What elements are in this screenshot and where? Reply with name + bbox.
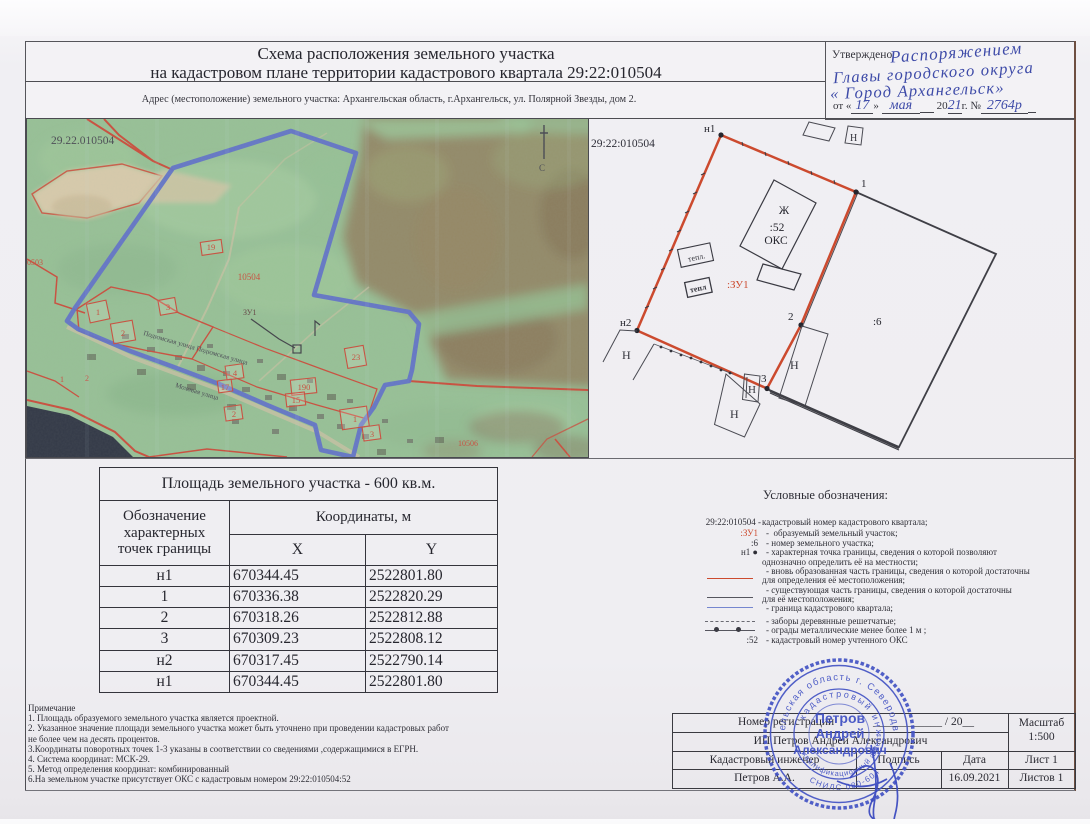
svg-text:Ж: Ж	[779, 205, 790, 217]
svg-text:Андрей: Андрей	[816, 726, 865, 741]
svg-text:Н: Н	[850, 133, 857, 144]
svg-text:1: 1	[861, 178, 867, 190]
svg-text:Н: Н	[790, 358, 799, 372]
svg-text:3: 3	[761, 373, 767, 385]
svg-text:ОКС: ОКС	[764, 235, 788, 247]
svg-text::6: :6	[873, 316, 882, 328]
svg-text::ЗУ1: :ЗУ1	[727, 279, 749, 291]
svg-text:2: 2	[788, 311, 794, 323]
svg-text::52: :52	[770, 222, 785, 234]
svg-text:Н: Н	[622, 348, 631, 362]
svg-text:н1: н1	[704, 123, 715, 135]
svg-text:Н: Н	[730, 407, 739, 421]
svg-text:тепл.: тепл.	[687, 251, 706, 263]
svg-text:29:22:010504: 29:22:010504	[591, 138, 655, 150]
svg-text:н2: н2	[620, 317, 631, 329]
svg-text:тепл: тепл	[689, 282, 708, 294]
svg-text:Петров: Петров	[815, 710, 866, 726]
